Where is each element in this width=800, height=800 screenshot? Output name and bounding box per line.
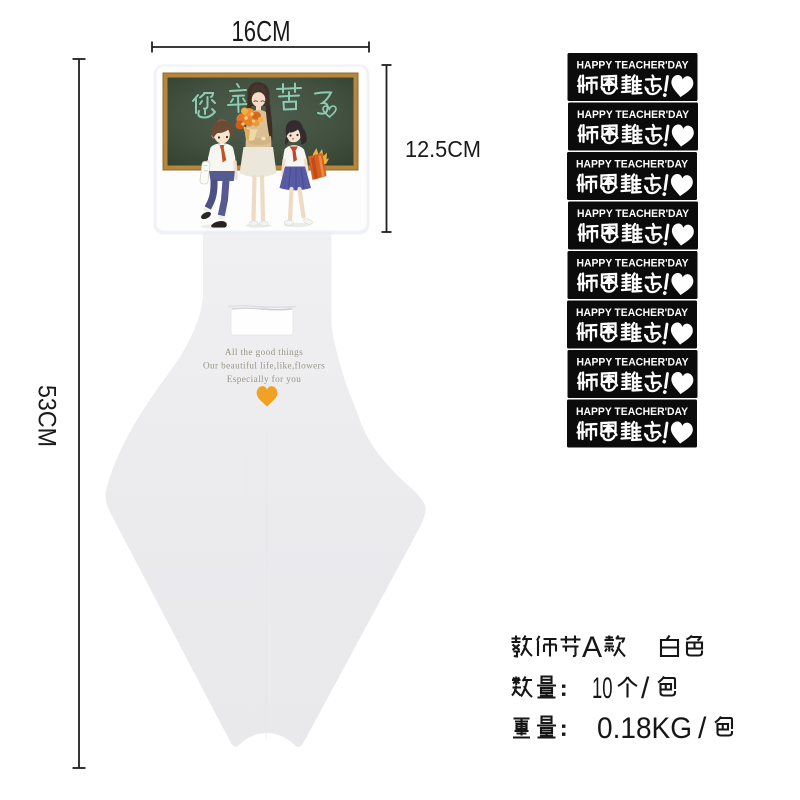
svg-text:Especially for you: Especially for you <box>227 374 302 384</box>
svg-text:Our beautiful life,like,flower: Our beautiful life,like,flowers <box>203 361 325 371</box>
svg-text:A: A <box>582 631 602 664</box>
svg-text:0.18KG: 0.18KG <box>597 712 692 745</box>
svg-text:/: / <box>698 712 707 745</box>
svg-text:10: 10 <box>592 672 613 705</box>
svg-text:All the good things: All the good things <box>225 347 303 357</box>
svg-text:/: / <box>641 672 650 705</box>
svg-text:16CM: 16CM <box>232 16 291 48</box>
svg-text:53CM: 53CM <box>33 385 61 447</box>
svg-text:12.5CM: 12.5CM <box>405 136 481 162</box>
